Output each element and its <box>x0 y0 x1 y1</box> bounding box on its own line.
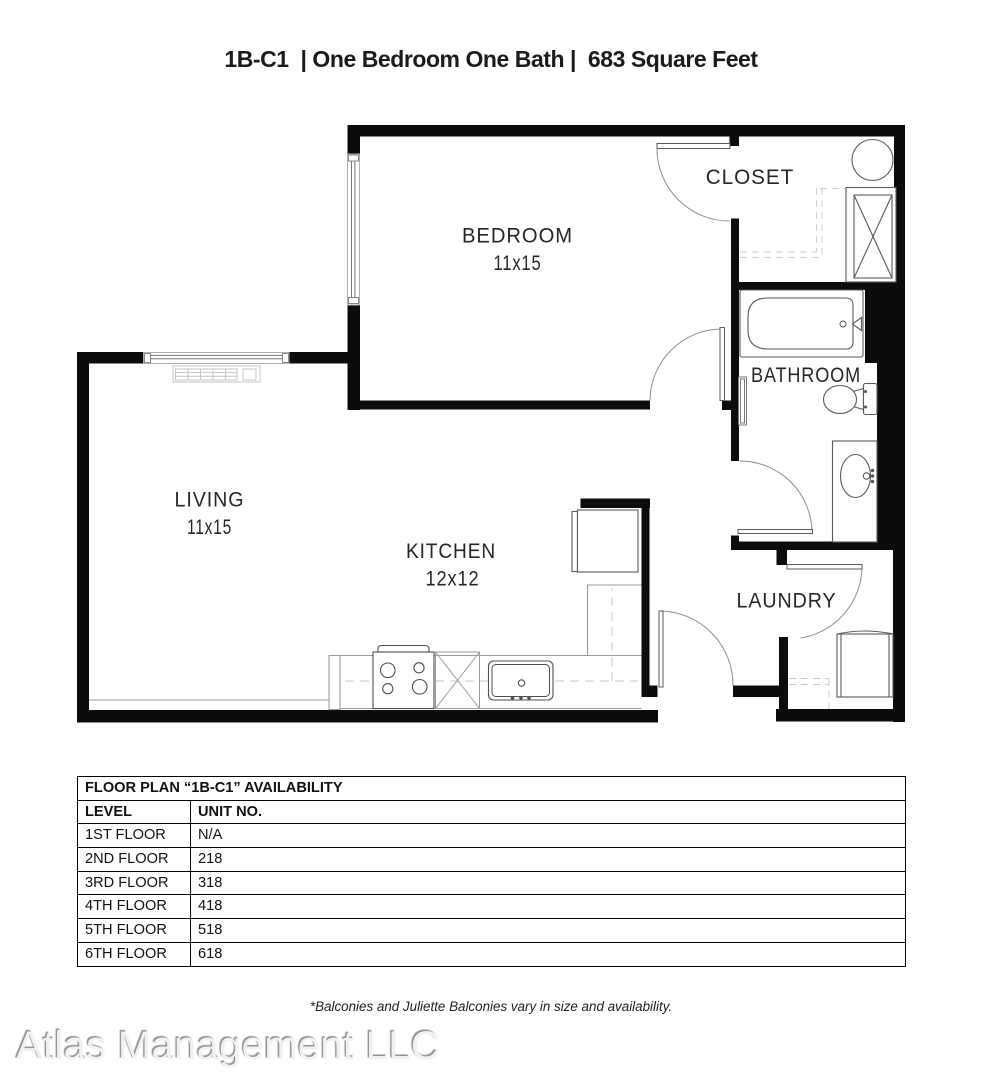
svg-text:11x15: 11x15 <box>494 251 542 275</box>
svg-text:BEDROOM: BEDROOM <box>462 224 573 248</box>
svg-text:KITCHEN: KITCHEN <box>406 539 496 563</box>
svg-text:11x15: 11x15 <box>187 515 232 539</box>
svg-text:LIVING: LIVING <box>175 488 245 512</box>
svg-text:CLOSET: CLOSET <box>706 165 795 189</box>
svg-text:BATHROOM: BATHROOM <box>751 363 861 387</box>
svg-text:12x12: 12x12 <box>426 567 480 591</box>
svg-text:LAUNDRY: LAUNDRY <box>737 589 837 613</box>
